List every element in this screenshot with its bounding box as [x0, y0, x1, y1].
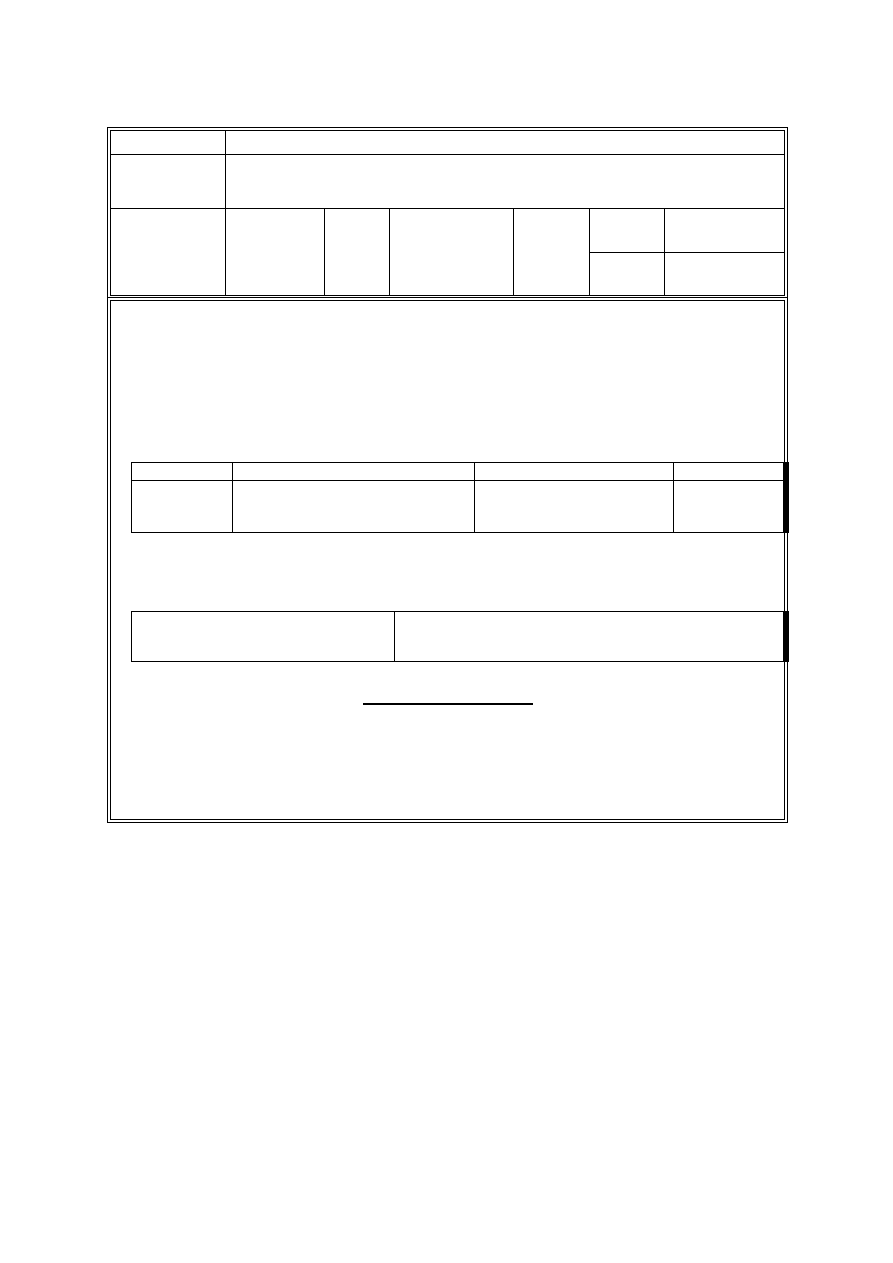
header-row3-cell-1 [111, 209, 226, 295]
details-header-cell-1 [132, 463, 233, 481]
details-data-cell-4 [674, 481, 783, 532]
two-column-table [131, 611, 789, 662]
header-table-grid [111, 131, 784, 295]
details-data-cell-2 [233, 481, 475, 532]
header-row3-cell-3 [325, 209, 390, 295]
two-column-right-cell [395, 612, 783, 661]
two-column-left-cell [132, 612, 395, 661]
header-row1-label-cell [111, 131, 226, 155]
signature-line [363, 703, 533, 705]
header-row2-label-cell [111, 155, 226, 209]
details-header-cell-4 [674, 463, 783, 481]
header-row3-cell-7-bottom [665, 253, 784, 295]
header-row3-cell-7-top [665, 209, 784, 253]
header-row3-cell-4 [390, 209, 514, 295]
header-row3-cell-5 [514, 209, 590, 295]
header-row3-cell-6-bottom [590, 253, 665, 295]
header-table [107, 127, 788, 299]
details-data-cell-1 [132, 481, 233, 532]
details-header-cell-2 [233, 463, 475, 481]
header-row2-value-cell [226, 155, 784, 209]
header-row1-value-cell [226, 131, 784, 155]
details-header-cell-3 [475, 463, 674, 481]
main-content-box [107, 297, 788, 823]
details-data-cell-3 [475, 481, 674, 532]
details-table [131, 462, 789, 533]
header-row3-cell-2 [226, 209, 325, 295]
header-row3-cell-6-top [590, 209, 665, 253]
document-page [0, 0, 893, 1263]
